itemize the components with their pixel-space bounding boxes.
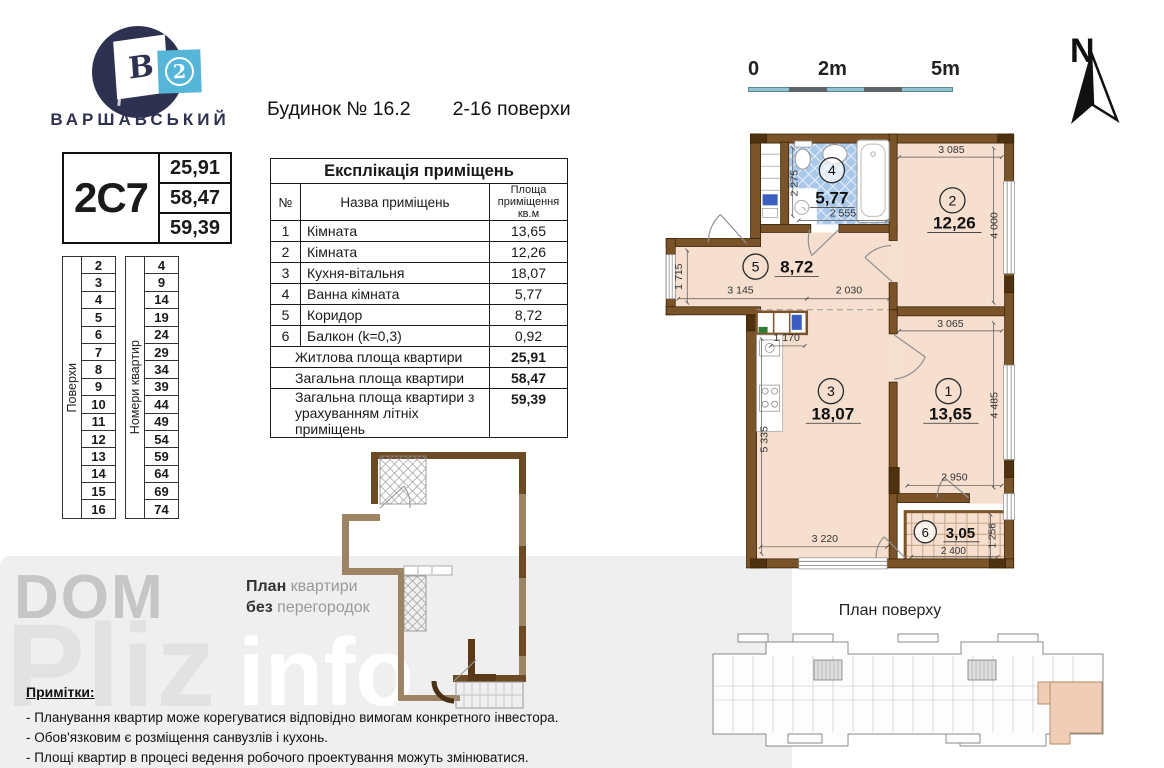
floor-number-cell: 14	[82, 466, 115, 483]
apartment-numbers: 4914192429343944495459646974	[145, 257, 178, 518]
room-1-number: 1	[944, 383, 952, 399]
dim-room1-right: 4 485	[989, 392, 1001, 418]
summary-label: Житлова площа квартири	[271, 347, 490, 368]
explication-title-row: Експлікація приміщень	[271, 159, 568, 184]
room-name: Кімната	[301, 242, 490, 263]
caption-word-partitions: перегородок	[273, 599, 370, 616]
explication-row: 2Кімната12,26	[271, 242, 568, 263]
total-area-value: 58,47	[160, 184, 230, 214]
room-area: 13,65	[490, 221, 568, 242]
floor-number-cell: 8	[82, 361, 115, 378]
apartment-number-cell: 39	[145, 379, 178, 396]
highlighted-apartment	[1050, 682, 1102, 744]
apartment-number-cell: 19	[145, 309, 178, 326]
apartment-number-cell: 74	[145, 500, 178, 517]
room-no: 6	[271, 326, 301, 347]
room-area: 12,26	[490, 242, 568, 263]
explication-table: Експлікація приміщень № Назва приміщень …	[270, 158, 568, 438]
col-header-name: Назва приміщень	[301, 184, 490, 221]
room-area: 0,92	[490, 326, 568, 347]
room-name: Кухня-вітальня	[301, 263, 490, 284]
room-name: Кімната	[301, 221, 490, 242]
explication-summary-row: Загальна площа квартири з урахуванням лі…	[271, 389, 568, 438]
apartment-code-box: 2C7 25,91 58,47 59,39	[62, 152, 232, 244]
apartment-number-cell: 59	[145, 448, 178, 465]
explication-body: Експлікація приміщень № Назва приміщень …	[271, 159, 568, 438]
apartment-number-cell: 64	[145, 466, 178, 483]
room-area: 8,72	[490, 305, 568, 326]
content: В 2 ВАРШАВСЬКИЙ 2C7 25,91 58,47 59,39 По…	[0, 0, 1164, 768]
apartment-number-cell: 69	[145, 483, 178, 500]
scale-5m-label: 5m	[931, 58, 960, 81]
summary-label: Загальна площа квартири з урахуванням лі…	[271, 389, 490, 438]
explication-title: Експлікація приміщень	[271, 159, 568, 184]
room-6-area: 3,05	[946, 525, 975, 542]
page: DOM Pliz info В 2 ВАРШАВСЬКИЙ 2C7 25,91 …	[0, 0, 1164, 768]
summary-value: 25,91	[490, 347, 568, 368]
explication-summary-row: Загальна площа квартири58,47	[271, 368, 568, 389]
room-5-number: 5	[752, 259, 760, 275]
floor-number-cell: 13	[82, 448, 115, 465]
floors-table-label: Поверхи	[65, 363, 79, 412]
floors-tables: Поверхи 2345678910111213141516 Номери кв…	[62, 256, 179, 519]
apartment-number-cell: 44	[145, 396, 178, 413]
explication-row: 5Коридор8,72	[271, 305, 568, 326]
room-3-number: 3	[827, 383, 835, 399]
dim-room3-bottom: 3 220	[812, 533, 838, 545]
dim-hall-v: 1 715	[673, 263, 685, 289]
floors-table-label-cell: Поверхи	[63, 257, 82, 518]
apartment-number-cell: 49	[145, 414, 178, 431]
floor-number-cell: 7	[82, 344, 115, 361]
scale-bar-segment	[789, 87, 827, 92]
dim-balcony-h: 2 400	[941, 546, 967, 557]
floor-number-cell: 3	[82, 274, 115, 291]
floor-number-cell: 10	[82, 396, 115, 413]
brand-name: ВАРШАВСЬКИЙ	[30, 110, 250, 130]
caption-word-apartment: квартири	[286, 578, 357, 595]
dim-room1-bottom: 2 950	[941, 472, 967, 484]
scale-bar-line	[748, 87, 953, 92]
room-name: Ванна кімната	[301, 284, 490, 305]
room-name: Балкон (k=0,3)	[301, 326, 490, 347]
apartment-number-cell: 24	[145, 327, 178, 344]
dim-balcony-v: 1 256	[988, 523, 999, 549]
floors-numbers: 2345678910111213141516	[82, 257, 115, 518]
col-header-no: №	[271, 184, 301, 221]
floor-number-cell: 9	[82, 379, 115, 396]
apartment-code: 2C7	[64, 154, 160, 242]
highlighted-apartment-annex	[1038, 682, 1050, 704]
note-item: - Обов'язковим є розміщення санвузлів і …	[26, 730, 559, 745]
room-6-label: 6 3,05	[914, 521, 979, 543]
apartment-numbers-label: Номери квартир	[128, 340, 142, 434]
living-area-value: 25,91	[160, 154, 230, 184]
floor-number-cell: 2	[82, 257, 115, 274]
apartment-numbers-label-cell: Номери квартир	[126, 257, 145, 518]
notes-title: Примітки:	[26, 684, 559, 700]
room-4-area: 5,77	[815, 188, 848, 207]
room-6-number: 6	[922, 525, 929, 540]
room-area: 5,77	[490, 284, 568, 305]
apartment-floor-plan: 3 085 4 000 2 275 2 555 1 715 3 145 2 03…	[658, 126, 1060, 590]
floor-number-cell: 5	[82, 309, 115, 326]
note-item: - Площі квартир в процесі ведення робочо…	[26, 750, 559, 765]
dim-hall-h2: 2 030	[836, 285, 862, 297]
floors-table: Поверхи 2345678910111213141516	[62, 256, 116, 519]
room-1-area: 13,65	[929, 404, 972, 423]
north-arrow: N	[1056, 28, 1126, 138]
room-4-number: 4	[828, 162, 836, 178]
summary-value: 58,47	[490, 368, 568, 389]
apartment-number-cell: 14	[145, 292, 178, 309]
caption-word-without: без	[246, 599, 273, 616]
floor-number-cell: 4	[82, 292, 115, 309]
scale-bar-segment	[864, 87, 902, 92]
summary-value: 59,39	[490, 389, 568, 438]
explication-row: 1Кімната13,65	[271, 221, 568, 242]
apartment-number-cell: 54	[145, 431, 178, 448]
room-3-area: 18,07	[812, 404, 855, 423]
dim-room1-top: 3 065	[937, 318, 963, 330]
floors-range-title: 2-16 поверхи	[453, 98, 571, 121]
apartment-number-cell: 9	[145, 274, 178, 291]
floor-number-cell: 15	[82, 483, 115, 500]
room-no: 3	[271, 263, 301, 284]
dim-room2-top: 3 085	[938, 144, 964, 156]
north-needle-white	[1091, 52, 1117, 120]
room-no: 1	[271, 221, 301, 242]
floor-number-cell: 11	[82, 414, 115, 431]
dim-hall-h1: 3 145	[727, 285, 753, 297]
dim-bath-h: 2 555	[830, 207, 856, 219]
logo-number: 2	[172, 60, 186, 82]
apartment-number-cell: 4	[145, 257, 178, 274]
caption-word-plan: План	[246, 578, 286, 595]
room-2-number: 2	[948, 192, 956, 208]
floor-number-cell: 16	[82, 500, 115, 517]
room-name: Коридор	[301, 305, 490, 326]
room-no: 4	[271, 284, 301, 305]
dim-kitchen-top: 1 170	[774, 332, 800, 344]
explication-row: 4Ванна кімната5,77	[271, 284, 568, 305]
note-item: - Планування квартир може корегуватися в…	[26, 710, 559, 725]
room-5-area: 8,72	[780, 258, 813, 277]
building-title: Будинок № 16.2	[267, 98, 411, 121]
notes-section: Примітки: - Планування квартир може коре…	[26, 684, 559, 768]
explication-header-row: № Назва приміщень Площа приміщення кв.м	[271, 184, 568, 221]
logo-number-ring: 2	[165, 57, 195, 87]
floor-number-cell: 6	[82, 327, 115, 344]
dim-bath-v: 2 275	[789, 170, 801, 196]
small-plan-caption: План квартири без перегородок	[246, 576, 370, 618]
col-header-area: Площа приміщення кв.м	[490, 184, 568, 221]
summary-label: Загальна площа квартири	[271, 368, 490, 389]
explication-row: 6Балкон (k=0,3)0,92	[271, 326, 568, 347]
logo-flag-letter: В	[127, 48, 155, 86]
floor-plan-title: План поверху	[760, 602, 1020, 620]
apartment-areas: 25,91 58,47 59,39	[160, 154, 230, 242]
building-floor-plan	[698, 622, 1118, 762]
scale-bar: 0 2m 5m	[748, 58, 956, 98]
room-no: 2	[271, 242, 301, 263]
document-title: Будинок № 16.2 2-16 поверхи	[267, 98, 571, 121]
logo-number-badge: 2	[157, 49, 201, 93]
dim-room2-right: 4 000	[989, 212, 1001, 238]
apartment-numbers-table: Номери квартир 4914192429343944495459646…	[125, 256, 179, 519]
apartment-number-cell: 29	[145, 344, 178, 361]
room-no: 5	[271, 305, 301, 326]
explication-summary-row: Житлова площа квартири25,91	[271, 347, 568, 368]
notes-list: - Планування квартир може корегуватися в…	[26, 710, 559, 765]
dim-kitchen-v: 5 335	[759, 426, 771, 452]
scale-0-label: 0	[748, 58, 759, 81]
room-2-area: 12,26	[933, 213, 976, 232]
room-area: 18,07	[490, 263, 568, 284]
scale-2m-label: 2m	[818, 58, 847, 81]
apartment-number-cell: 34	[145, 361, 178, 378]
explication-row: 3Кухня-вітальня18,07	[271, 263, 568, 284]
floor-number-cell: 12	[82, 431, 115, 448]
total-area-summer-value: 59,39	[160, 214, 230, 242]
